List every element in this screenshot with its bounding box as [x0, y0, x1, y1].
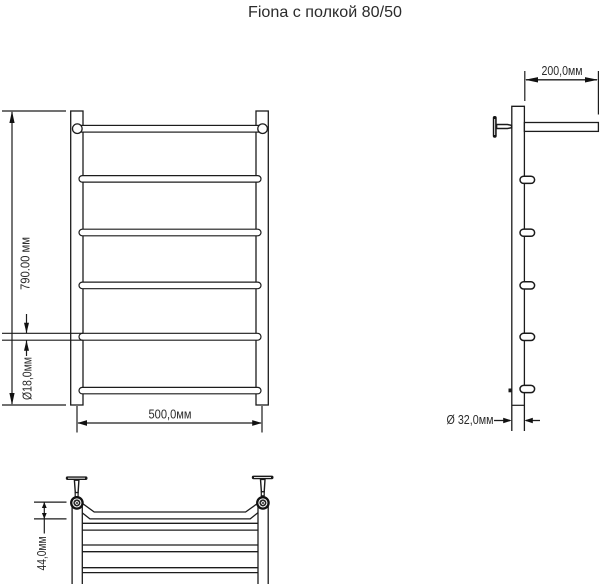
- svg-text:790.00 мм: 790.00 мм: [18, 237, 33, 290]
- svg-text:500,0мм: 500,0мм: [149, 407, 192, 422]
- svg-text:200,0мм: 200,0мм: [542, 63, 583, 78]
- svg-text:Ø 32,0мм: Ø 32,0мм: [447, 412, 494, 427]
- svg-text:Ø18,0мм: Ø18,0мм: [20, 357, 35, 400]
- svg-text:Fiona с полкой 80/50: Fiona с полкой 80/50: [248, 4, 402, 21]
- svg-text:44,0мм: 44,0мм: [34, 536, 49, 570]
